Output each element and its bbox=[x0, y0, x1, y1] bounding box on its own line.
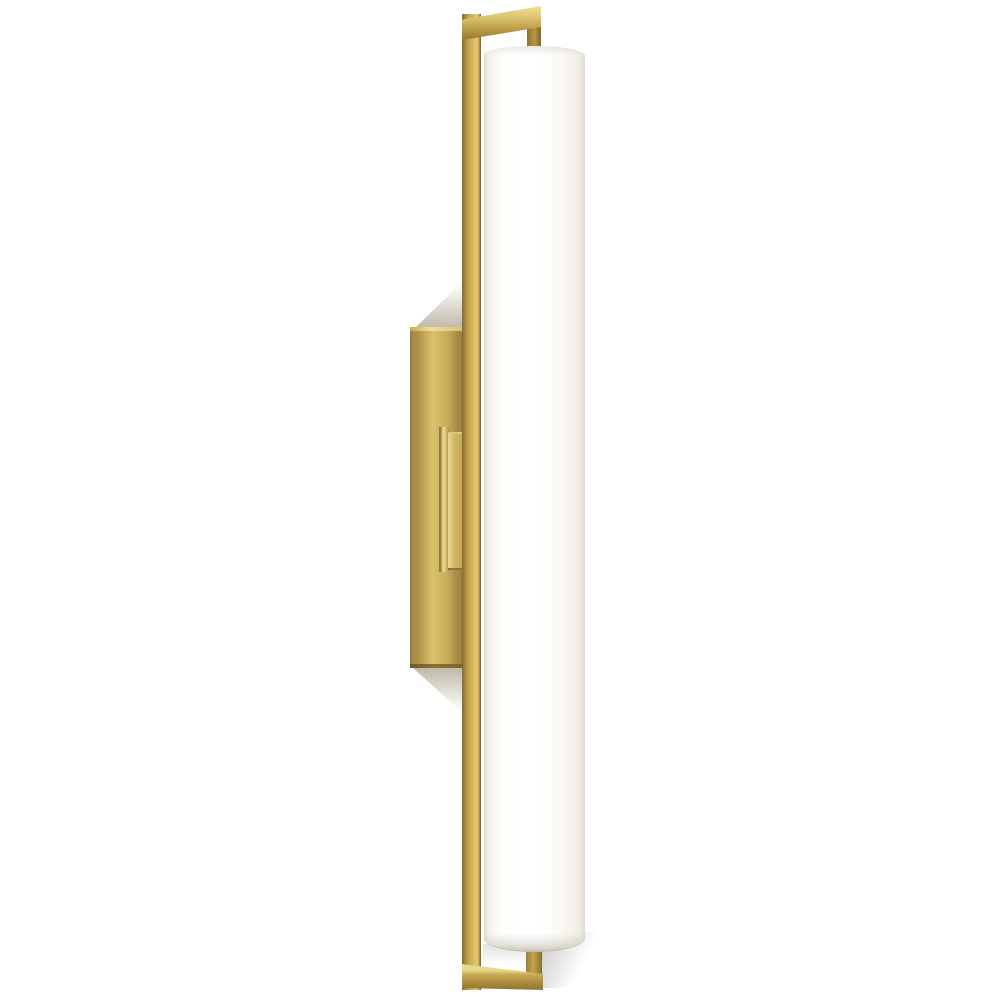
frame-vertical-bar bbox=[462, 14, 481, 990]
product-image bbox=[0, 0, 1000, 1000]
shadow-above-backplate bbox=[413, 282, 462, 328]
backplate-bottom-edge bbox=[410, 664, 462, 668]
shadow-below-backplate bbox=[413, 668, 462, 715]
glass-top-rim bbox=[484, 46, 585, 56]
glass-diffuser bbox=[484, 46, 585, 952]
backplate-top-edge bbox=[410, 327, 462, 331]
